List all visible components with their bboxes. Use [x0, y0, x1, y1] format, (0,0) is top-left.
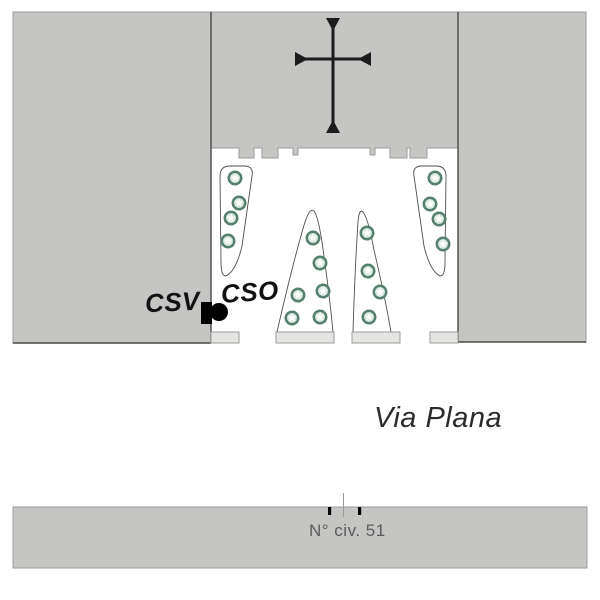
entrance-tick-left	[328, 507, 331, 515]
building-right	[458, 12, 586, 342]
csv-label: CSV	[144, 288, 200, 318]
plant-icon	[363, 311, 375, 323]
plant-icon	[229, 172, 241, 184]
cso-label: CSO	[220, 277, 280, 308]
plant-icon	[374, 286, 386, 298]
plant-icon	[433, 213, 445, 225]
plant-icon	[362, 265, 374, 277]
plant-icon	[437, 238, 449, 250]
plant-icon	[361, 227, 373, 239]
site-plan: CSV CSO Via Plana N° civ. 51	[0, 0, 600, 600]
wall-plinth	[211, 332, 239, 343]
wall-plinth	[276, 332, 334, 343]
plant-icon	[307, 232, 319, 244]
entrance-tick-right	[358, 507, 361, 515]
plant-icon	[429, 172, 441, 184]
civic-number-label: N° civ. 51	[309, 522, 386, 540]
plant-icon	[286, 312, 298, 324]
plant-icon	[317, 285, 329, 297]
plant-icon	[424, 198, 436, 210]
plant-icon	[222, 235, 234, 247]
plan-drawing	[0, 0, 600, 600]
wall-plinth	[430, 332, 458, 343]
street-building-strip	[13, 507, 587, 568]
plant-icon	[225, 212, 237, 224]
plant-icon	[314, 311, 326, 323]
plant-icon	[292, 289, 304, 301]
plant-icon	[233, 197, 245, 209]
street-name-label: Via Plana	[374, 403, 502, 433]
plant-icon	[314, 257, 326, 269]
wall-plinth	[352, 332, 400, 343]
